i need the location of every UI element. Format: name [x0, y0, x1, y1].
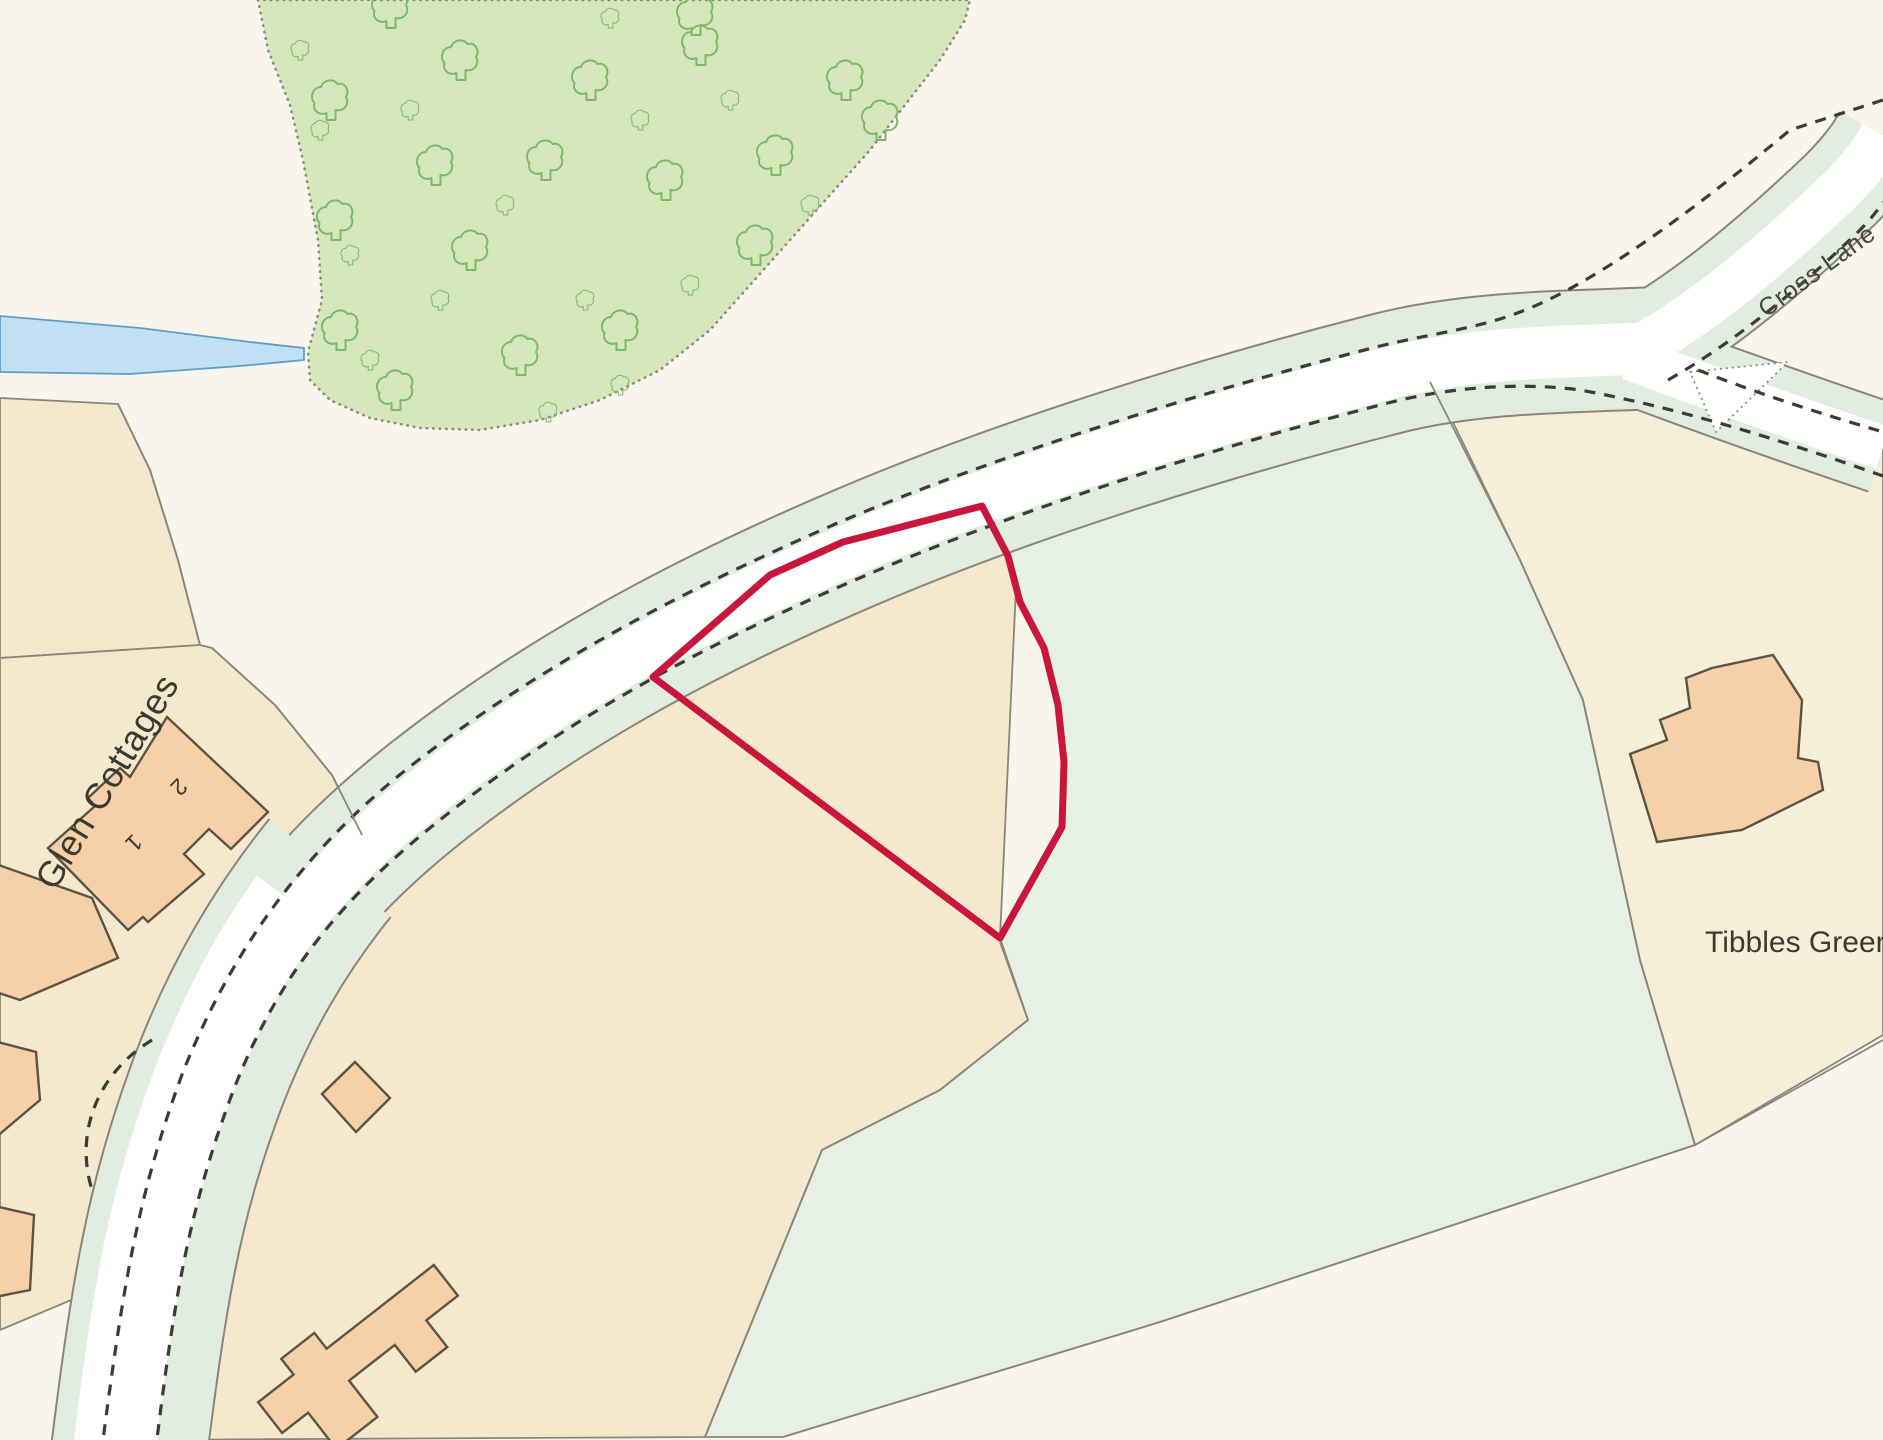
label-tibbles-green: Tibbles Green [1705, 926, 1883, 959]
map-canvas: Glen Cottages 2 1 Tibbles Green Cross La… [0, 0, 1883, 1440]
building-left-partial-3 [0, 1205, 34, 1298]
map-svg: Glen Cottages 2 1 Tibbles Green Cross La… [0, 0, 1883, 1440]
